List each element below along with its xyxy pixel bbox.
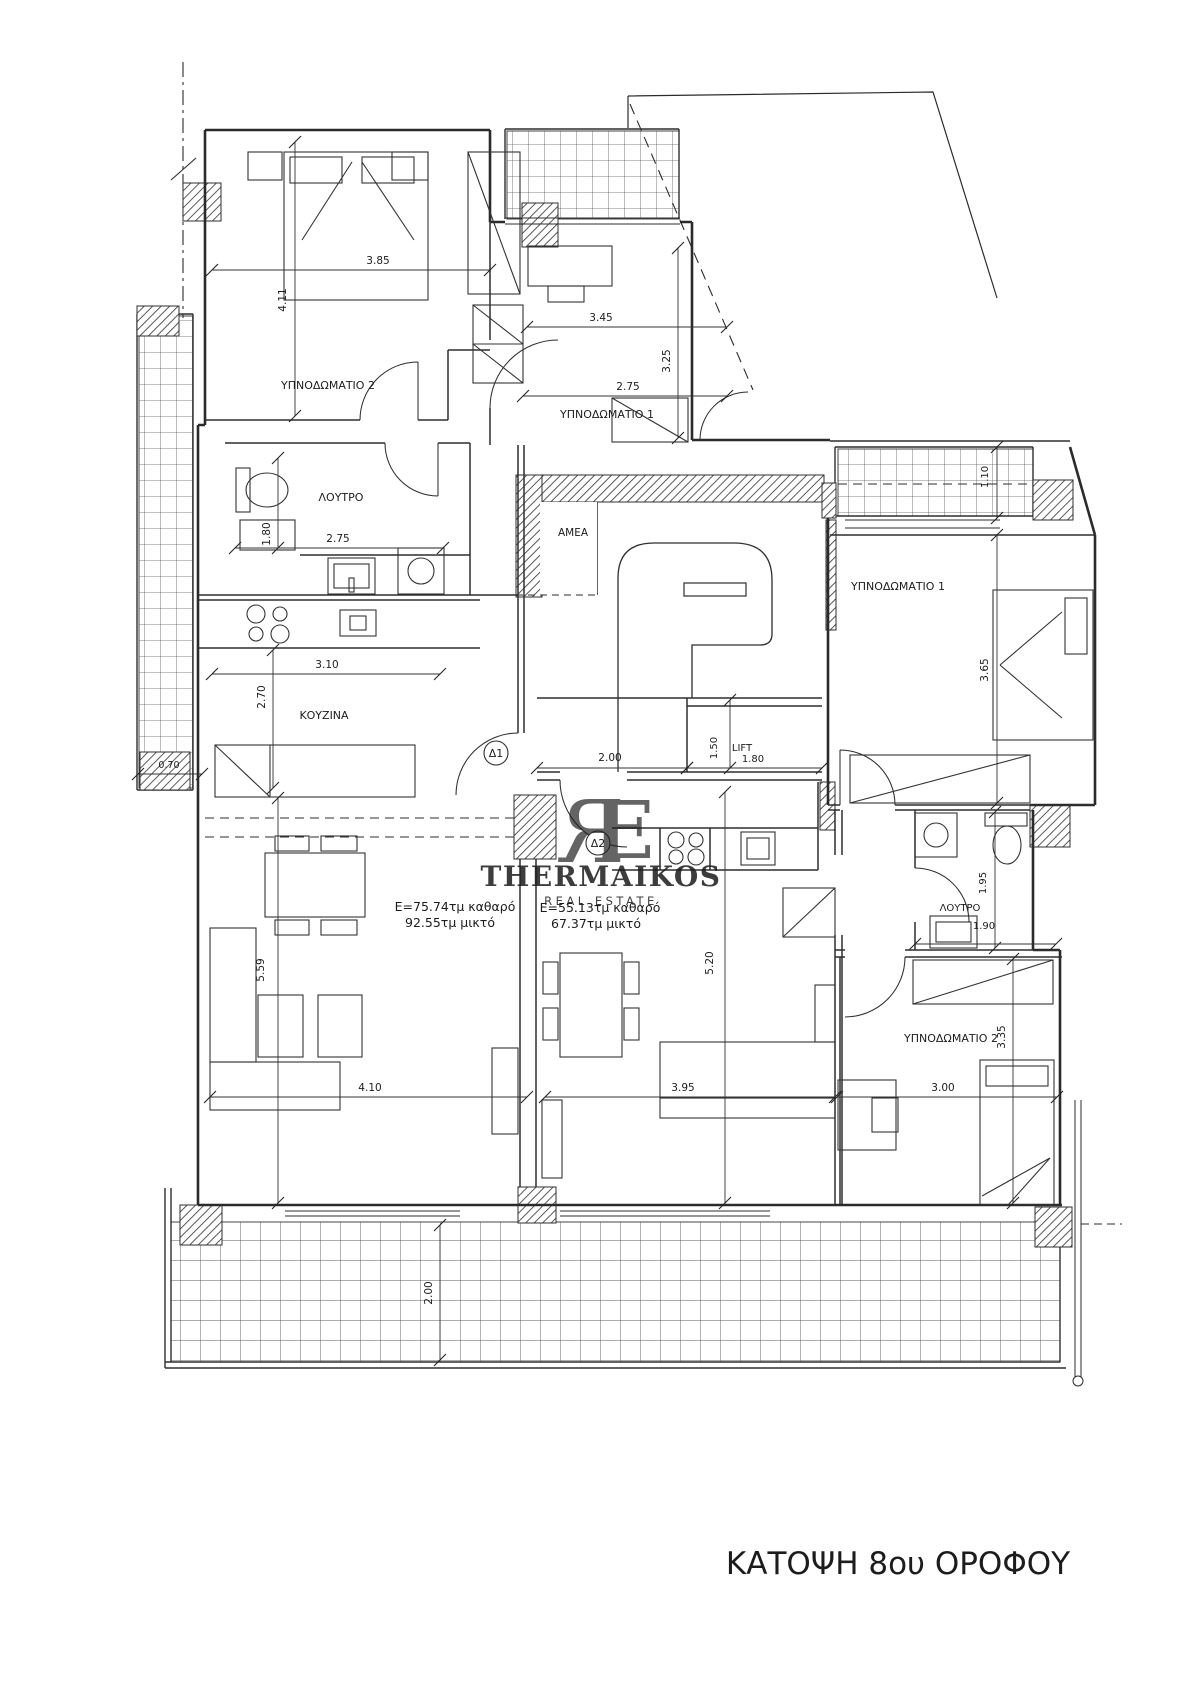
boundary-solid <box>628 92 997 298</box>
dim-label-left_kitchen_w: 3.10 <box>315 659 338 671</box>
dim-label-right_balcony_h: 1.10 <box>980 466 991 488</box>
desk <box>838 1080 896 1150</box>
stair-landing-rect <box>684 583 746 596</box>
dimension-left_kitchen_w: 3.10 <box>206 659 446 680</box>
dim-label-left_bath_w: 2.75 <box>326 533 349 545</box>
label-rooms-left_bedroom2: ΥΠΝΟΔΩΜΑΤΙΟ 2 <box>280 379 375 392</box>
stove-burner <box>249 627 263 641</box>
chair <box>543 1008 558 1040</box>
label-rooms-left_bath: ΛΟΥΤΡΟ <box>319 491 364 504</box>
dim-label-left_bath_h: 1.80 <box>261 522 273 545</box>
pillow <box>362 157 414 183</box>
sink <box>328 558 375 594</box>
label-rooms-amea: AMEA <box>558 527 589 539</box>
label-rooms-right_bedroom1: ΥΠΝΟΔΩΜΑΤΙΟ 1 <box>850 580 945 593</box>
pillow <box>1065 598 1087 654</box>
bed-right-bedroom1 <box>993 590 1093 740</box>
toilet-bowl <box>993 826 1021 864</box>
side-table <box>815 985 835 1042</box>
dim-label-left_kitchen_h: 2.70 <box>256 685 268 708</box>
armchair <box>318 995 362 1057</box>
dimension-lift_w: 1.80 <box>681 754 828 774</box>
plan-title: ΚΑΤΟΨΗ 8ου ΟΡΟΦΟΥ <box>726 1546 1070 1582</box>
dimension-left_bedroom2_w: 3.85 <box>206 255 496 276</box>
bed-left-bedroom2 <box>284 152 428 300</box>
dimension-left_bedroom1_w: 3.45 <box>521 312 733 333</box>
balcony-top-right <box>838 449 1033 516</box>
stairs <box>618 543 772 772</box>
dim-label-left_bedroom1_w2: 2.75 <box>616 381 639 393</box>
dim-label-left_bedroom1_w: 3.45 <box>589 312 612 324</box>
label-apartments-1-area_line1: E=55.13τμ καθαρό <box>540 900 661 915</box>
chair <box>872 1098 898 1132</box>
armchair <box>258 995 303 1057</box>
stove-burner <box>247 605 265 623</box>
sofa-left <box>210 928 256 1062</box>
kitchen-island <box>215 745 415 797</box>
dimension-mid_living_h: 5.20 <box>704 786 731 1209</box>
dim-label-mid_living_h: 5.20 <box>704 951 716 974</box>
kitchen-sink <box>741 832 775 865</box>
chair <box>321 920 357 935</box>
sofa-middle <box>660 1098 835 1118</box>
sofa-left <box>210 1062 340 1110</box>
balcony-bottom <box>171 1222 1060 1362</box>
desk <box>528 246 612 286</box>
dimension-core_w: 2.00 <box>531 752 693 774</box>
dim-label-lift_w: 1.80 <box>742 754 764 765</box>
pillow <box>290 157 342 183</box>
tv-unit <box>542 1100 562 1178</box>
label-apartments-0-area_line1: E=75.74τμ καθαρό <box>395 899 516 914</box>
washing-machine <box>915 813 957 857</box>
kitchen-sink <box>340 610 376 636</box>
label-apartments-1-door_label: Δ2 <box>591 837 606 850</box>
dining-table-middle <box>560 953 622 1057</box>
dimension-right_bedroom2_w: 3.00 <box>831 1082 1063 1103</box>
dimension-left_bedroom1_w2: 2.75 <box>517 381 733 402</box>
balcony-left-strip <box>139 316 193 788</box>
dim-label-lift_h: 1.50 <box>709 737 720 759</box>
chair <box>548 286 584 302</box>
floor-plan-page: R E THERMAIKOS REAL ESTATE 3.854.113.453… <box>0 0 1200 1697</box>
tv-unit <box>492 1048 518 1134</box>
label-apartments-0-door_label: Δ1 <box>489 747 504 760</box>
dim-label-left_living_w: 4.10 <box>358 1082 381 1094</box>
dimension-left_living_h: 5.59 <box>255 792 284 1209</box>
nightstand <box>248 152 282 180</box>
nightstand <box>392 152 428 180</box>
boundary-right-double <box>1075 1100 1081 1377</box>
chair <box>543 962 558 994</box>
dimension-left_living_w: 4.10 <box>204 1082 533 1103</box>
dimension-right_bedroom1_h: 3.65 <box>979 529 1003 809</box>
bed-right-bedroom2 <box>980 1060 1054 1205</box>
amea-room <box>540 502 597 595</box>
dim-label-mid_living_w: 3.95 <box>671 1082 694 1094</box>
dim-label-right_bedroom2_w: 3.00 <box>931 1082 954 1094</box>
floor-plan-svg: R E THERMAIKOS REAL ESTATE 3.854.113.453… <box>0 0 1200 1697</box>
stove-burner <box>668 832 684 848</box>
dim-label-right_bedroom1_h: 3.65 <box>979 658 991 681</box>
label-rooms-right_bedroom2: ΥΠΝΟΔΩΜΑΤΙΟ 2 <box>903 1032 998 1045</box>
pillow <box>986 1066 1048 1086</box>
chair <box>275 920 309 935</box>
label-rooms-lift: LIFT <box>732 743 753 754</box>
dimension-right_bath_w: 1.90 <box>909 921 1062 950</box>
stove-burner <box>273 607 287 621</box>
toilet-bowl <box>246 473 288 507</box>
dim-label-left_bedroom2_w: 3.85 <box>366 255 389 267</box>
boundary-end-marker <box>1073 1376 1083 1386</box>
label-rooms-left_bedroom1: ΥΠΝΟΔΩΜΑΤΙΟ 1 <box>559 408 654 421</box>
dimension-lines: 3.854.113.453.252.751.802.753.102.700.70… <box>132 136 1063 1366</box>
chair <box>321 836 357 851</box>
dim-label-core_w: 2.00 <box>598 752 621 764</box>
label-rooms-right_bath: ΛΟΥΤΡΟ <box>940 903 981 914</box>
watermark-name: THERMAIKOS <box>481 860 722 893</box>
label-apartments-1-area_line2: 67.37τμ μικτό <box>551 916 641 931</box>
stove-burner <box>271 625 289 643</box>
chair <box>275 836 309 851</box>
chair <box>624 962 639 994</box>
dim-label-right_bath_h: 1.95 <box>978 872 989 894</box>
stove-burner <box>689 833 703 847</box>
dimension-right_bedroom2_h: 3.35 <box>996 953 1019 1209</box>
dim-label-right_bath_w: 1.90 <box>973 921 995 932</box>
dimension-mid_living_w: 3.95 <box>539 1082 841 1103</box>
dimension-left_kitchen_h: 2.70 <box>256 644 279 794</box>
toilet-tank <box>236 468 250 512</box>
furniture <box>210 152 1093 1205</box>
dim-label-left_bedroom1_h: 3.25 <box>661 349 673 372</box>
plot-boundary-lines <box>171 62 1122 1386</box>
dining-table-left <box>265 853 365 917</box>
sink <box>930 916 977 948</box>
dim-label-left_bedroom2_h: 4.11 <box>277 288 289 311</box>
chair <box>624 1008 639 1040</box>
dim-label-left_living_h: 5.59 <box>255 958 267 981</box>
dim-label-bottom_balcony_h: 2.00 <box>423 1281 435 1304</box>
dimension-left_bedroom1_h: 3.25 <box>661 242 684 444</box>
dim-label-left_balcony_w: 0.70 <box>158 760 179 771</box>
label-rooms-left_kitchen: ΚΟΥΖΙΝΑ <box>299 709 349 722</box>
label-apartments-0-area_line2: 92.55τμ μικτό <box>405 915 495 930</box>
